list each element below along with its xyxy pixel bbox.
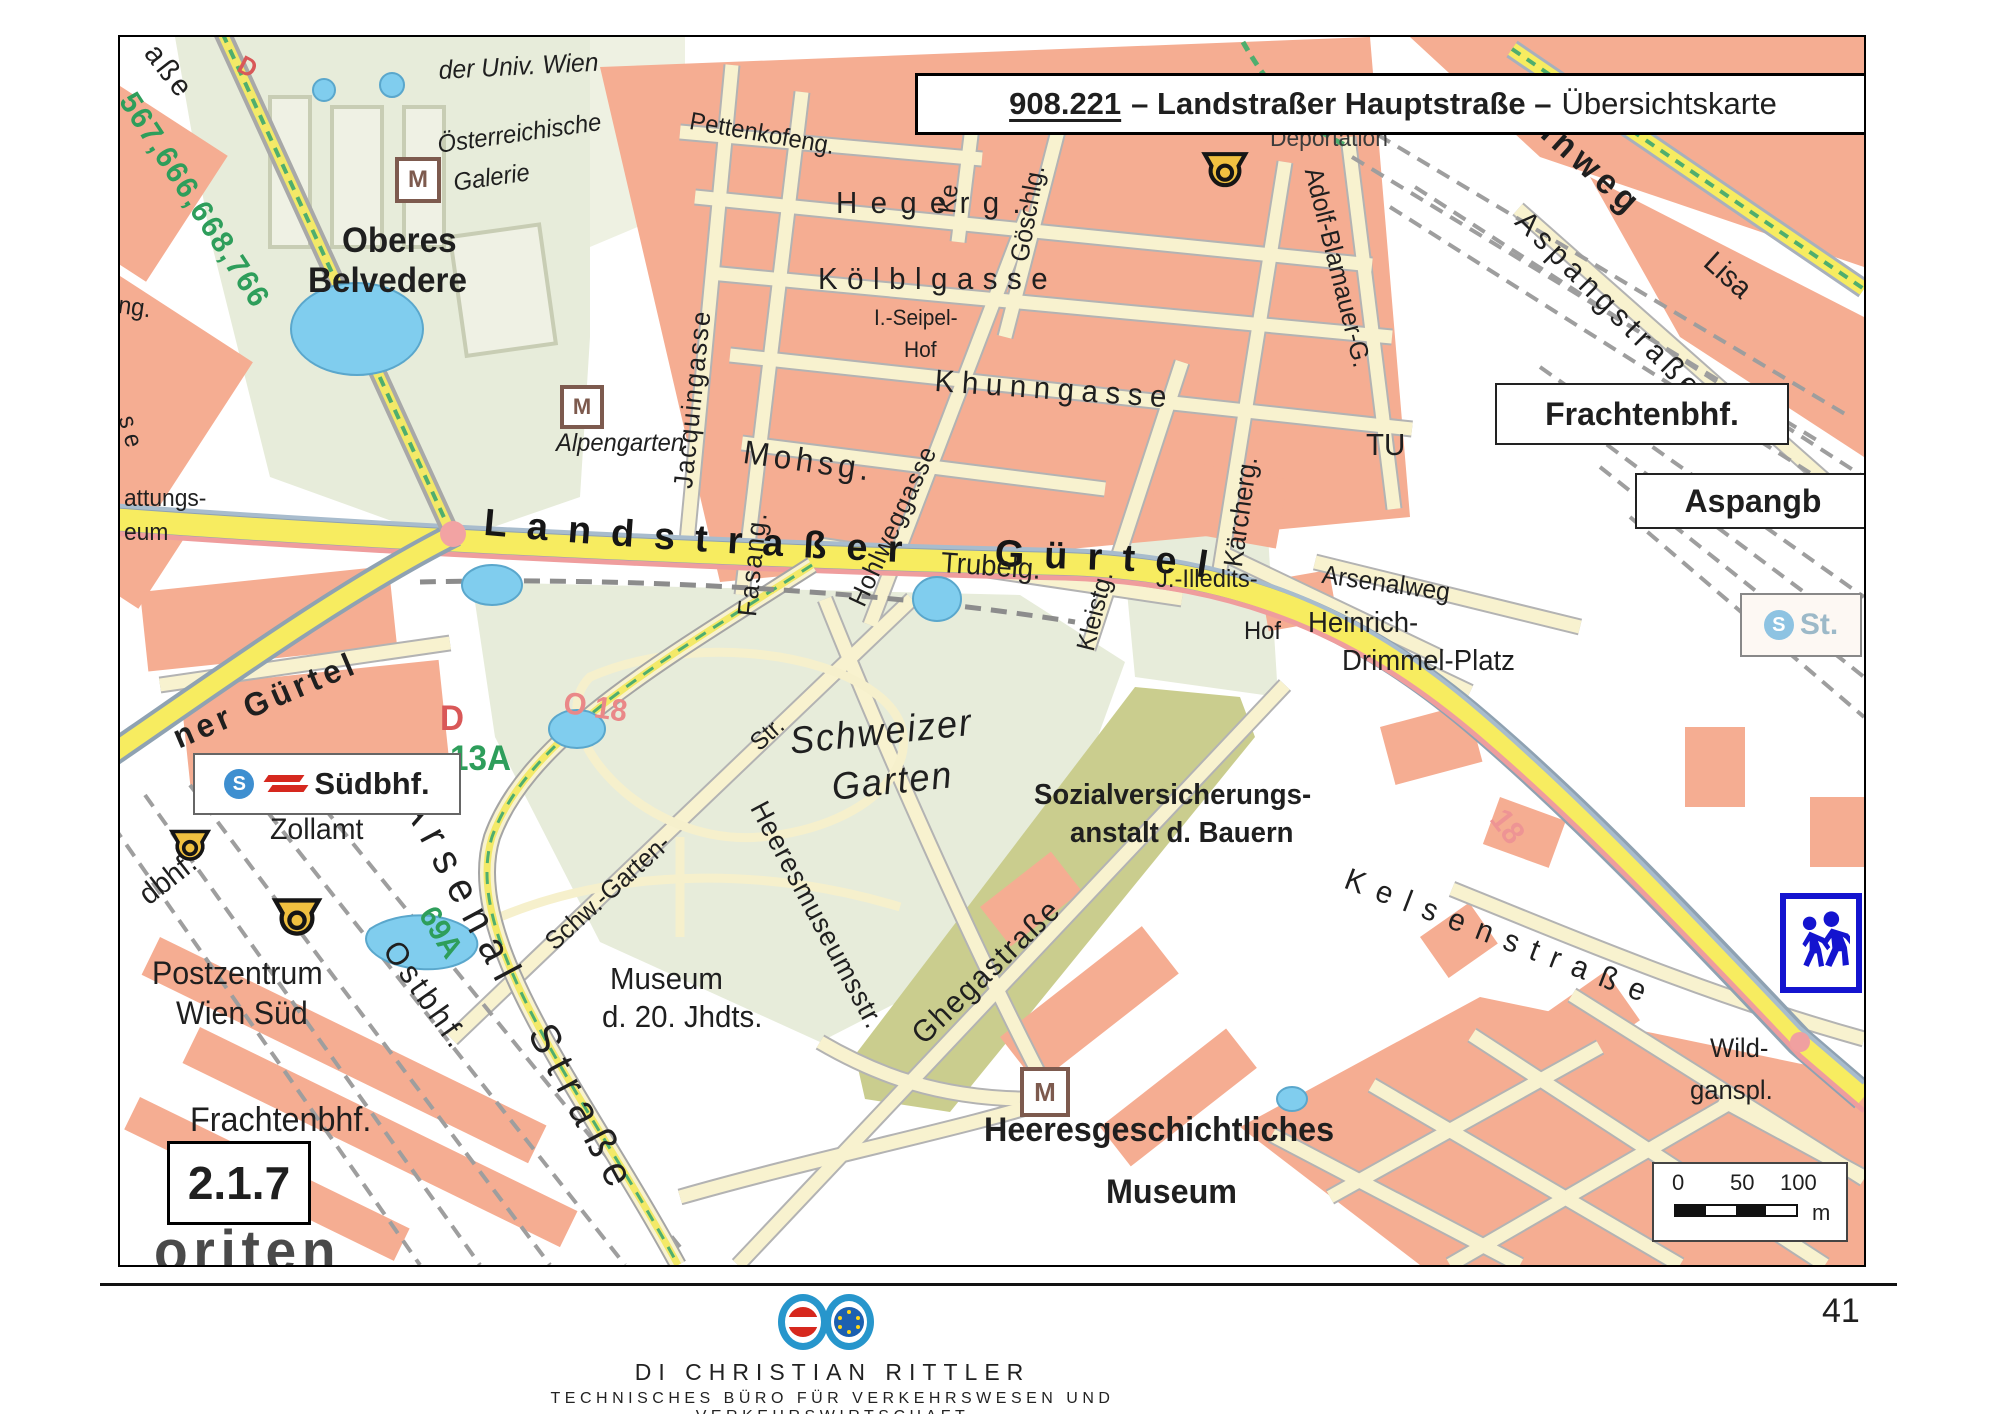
- aspangbahnhof-box-text: Aspangb: [1685, 483, 1822, 520]
- map-label-37: Wild-: [1710, 1035, 1768, 1062]
- post-horn-icon: [268, 895, 326, 942]
- oebb-logo-icon: [262, 772, 306, 796]
- company-logo: [778, 1294, 888, 1352]
- map-label-59: Wien Süd: [176, 997, 308, 1029]
- map-label-39: Sozialversicherungs-: [1034, 781, 1311, 810]
- title-project-number: 908.221: [1009, 86, 1121, 122]
- document-page: Landstraßer Gürtel aßeD567,666,668,766de…: [0, 0, 2000, 1414]
- station-st-box-text: St.: [1800, 608, 1838, 642]
- map-scale: 0 50 100 m: [1652, 1162, 1848, 1242]
- scale-tick-50: 50: [1730, 1170, 1754, 1196]
- map-label-65: ng.: [118, 293, 153, 322]
- map-label-40: anstalt d. Bauern: [1070, 819, 1294, 848]
- map-label-12: Kölblgasse: [818, 263, 1057, 294]
- map-label-31: J.-Illedits-: [1156, 567, 1258, 592]
- map-label-3: der Univ. Wien: [438, 49, 599, 83]
- aspangbahnhof-box-label: Aspangb: [1635, 473, 1866, 529]
- map-label-67: attungs-: [124, 487, 206, 511]
- frachtenbahnhof-box-text: Frachtenbhf.: [1545, 396, 1739, 433]
- scale-tick-0: 0: [1672, 1170, 1684, 1196]
- scale-tick-100: 100: [1780, 1170, 1817, 1196]
- austria-flag-badge-icon: [778, 1294, 828, 1350]
- page-number: 41: [1822, 1292, 1860, 1331]
- pedestrian-crossing-icon: [1780, 893, 1862, 993]
- title-map-type: Übersichtskarte: [1562, 86, 1777, 122]
- label-frachtenbhf-south: Frachtenbhf.: [190, 1103, 371, 1137]
- museum-icon: M: [395, 157, 441, 203]
- museum-icon: M: [1020, 1067, 1070, 1117]
- museum-icon-glyph: M: [1034, 1077, 1056, 1108]
- suedbahnhof-box-text: Südbhf.: [314, 766, 429, 802]
- map-label-34: Drimmel-Platz: [1342, 647, 1515, 676]
- map-label-49: Heeresgeschichtliches: [984, 1113, 1334, 1147]
- footer-company-name: DI Christian Rittler: [500, 1359, 1165, 1386]
- sbahn-icon-glyph: S: [233, 773, 246, 796]
- map-label-64: oriten: [154, 1223, 341, 1267]
- post-horn-icon: [166, 827, 214, 866]
- label-heeresgesch-museum: Museum: [1106, 1175, 1237, 1209]
- map-label-68: eum: [124, 521, 168, 545]
- map-label-11: Hegerg.: [836, 187, 1034, 218]
- sbahn-icon-glyph: S: [1772, 614, 1785, 637]
- post-horn-icon: [1198, 149, 1252, 193]
- pedestrians-icon: [1792, 908, 1850, 978]
- map-label-8: Alpengarten: [556, 431, 684, 456]
- map-label-58: Postzentrum: [152, 957, 323, 989]
- museum-icon-glyph: M: [573, 394, 591, 420]
- sbahn-icon: S: [224, 769, 254, 799]
- title-street-name: – Landstraßer Hauptstraße –: [1131, 86, 1551, 122]
- label-tram-o-18: O 18: [562, 687, 630, 727]
- station-st-box-label: S St.: [1740, 593, 1862, 657]
- label-illedits-hof: Hof: [1244, 619, 1281, 644]
- map-label-33: Heinrich-: [1308, 609, 1418, 638]
- map-label-6: Oberes: [342, 223, 457, 258]
- suedbahnhof-box-label: S Südbhf.: [193, 753, 461, 815]
- footer-company-subtitle: Technisches Büro für Verkehrswesen und V…: [500, 1390, 1165, 1414]
- scale-unit: m: [1812, 1200, 1830, 1226]
- label-seipel-hof: Hof: [904, 339, 937, 361]
- map-label-48: d. 20. Jhdts.: [602, 1001, 762, 1032]
- eu-flag-badge-icon: [824, 1294, 874, 1350]
- museum-icon-glyph: M: [408, 166, 428, 194]
- map-title-box: 908.221 – Landstraßer Hauptstraße – Über…: [915, 73, 1866, 135]
- scale-bar: [1674, 1204, 1798, 1217]
- frachtenbahnhof-box-label: Frachtenbhf.: [1495, 383, 1789, 445]
- label-museum-20: Museum: [610, 963, 723, 994]
- map-label-13: I.-Seipel-: [874, 307, 958, 329]
- sbahn-icon: S: [1764, 610, 1794, 640]
- footer: DI Christian Rittler Technisches Büro fü…: [500, 1294, 1165, 1414]
- map-label-56: Zollamt: [270, 815, 363, 845]
- museum-icon: M: [560, 385, 604, 429]
- section-number: 2.1.7: [188, 1156, 290, 1210]
- map-label-38: ganspl.: [1690, 1077, 1773, 1104]
- overview-map[interactable]: Landstraßer Gürtel aßeD567,666,668,766de…: [118, 35, 1866, 1267]
- map-label-17: Trubelg.: [940, 549, 1042, 585]
- section-number-box: 2.1.7: [167, 1141, 311, 1225]
- map-label-29: TU: [1366, 429, 1405, 460]
- label-tram-d: D: [440, 701, 464, 736]
- map-label-7: Belvedere: [308, 263, 467, 298]
- footer-divider: [100, 1283, 1897, 1286]
